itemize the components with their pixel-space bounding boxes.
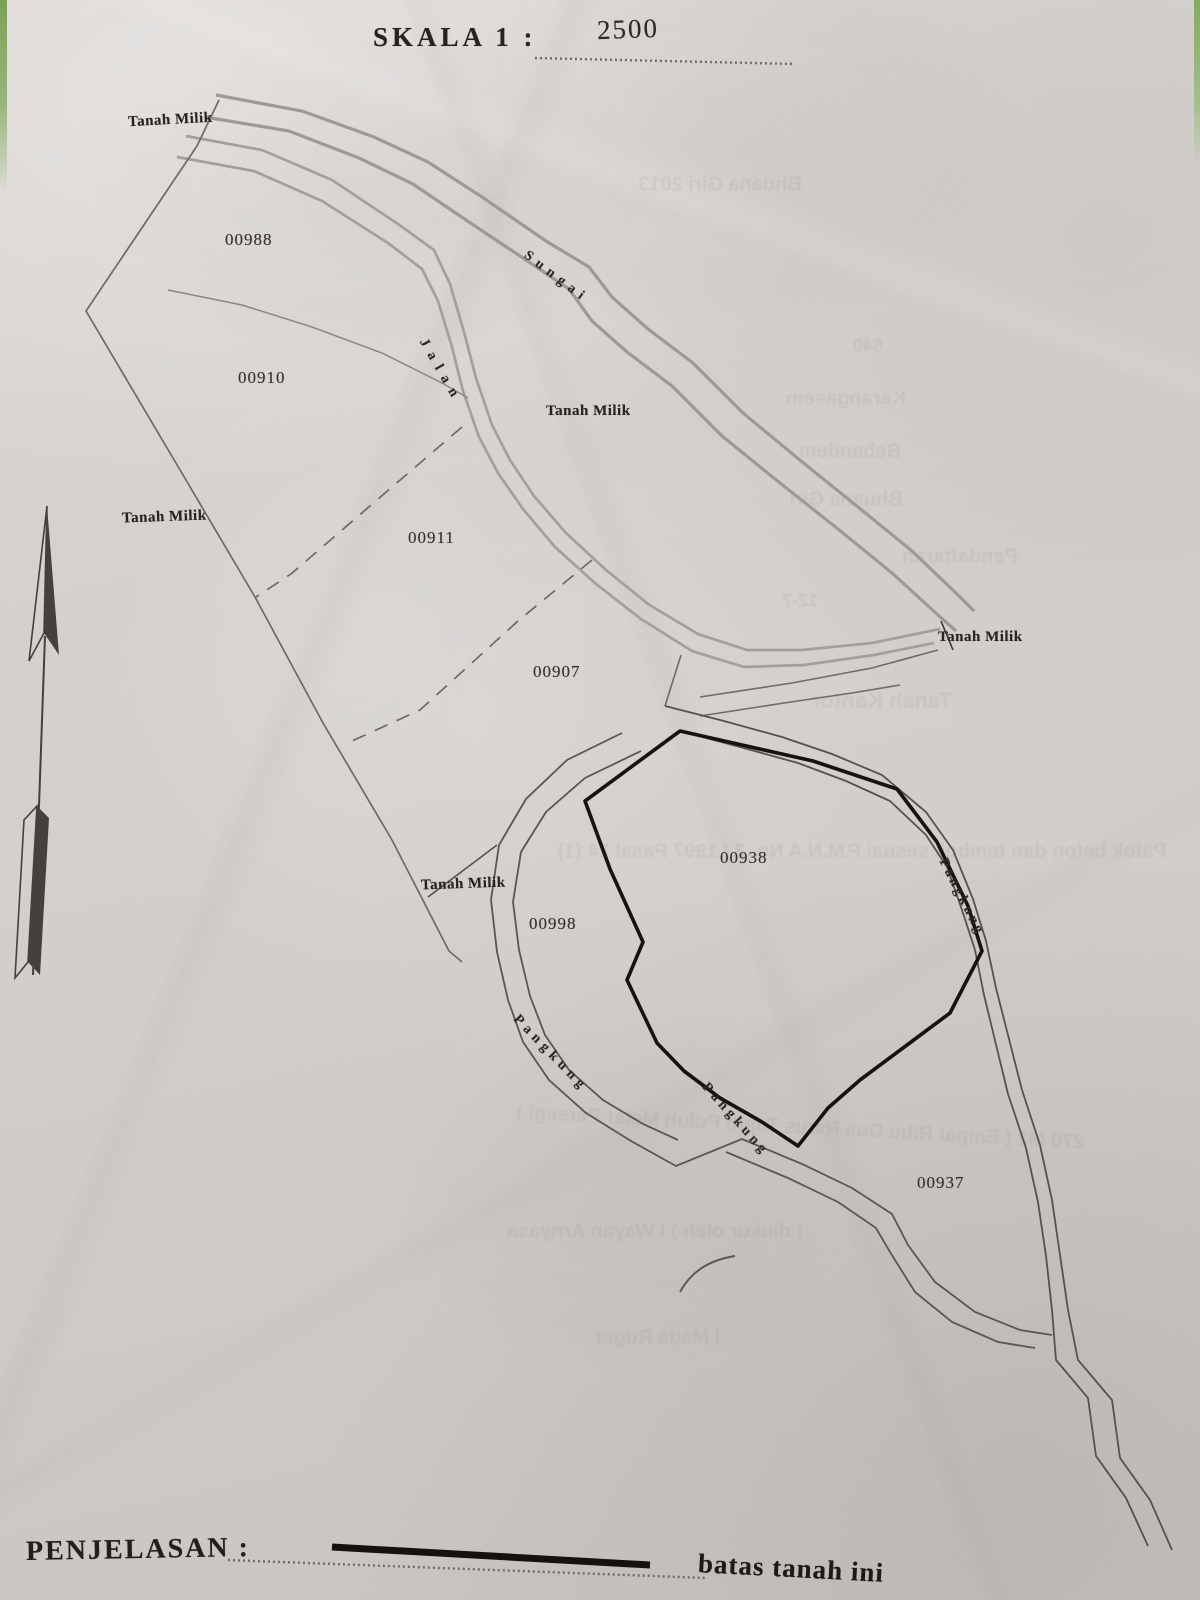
road-line-east (186, 136, 940, 650)
dashed-divider-1 (256, 427, 462, 597)
parcel-number-00911: 00911 (408, 528, 455, 548)
scale-title: SKALA 1 : (373, 22, 537, 53)
river-line-south (205, 117, 956, 631)
river-line-north (216, 95, 974, 611)
contour-curve (680, 1256, 735, 1292)
owner-label-right: Tanah Milik (938, 629, 1023, 646)
wedge-line-1 (700, 650, 938, 697)
north-arrow-tail-fill (28, 806, 49, 975)
owner-label-south: Tanah Milik (421, 875, 506, 895)
boundary-road-to-gully (665, 655, 681, 706)
bold-land-boundary (585, 731, 982, 1146)
scale-value: 2500 (596, 13, 659, 46)
scale-dotted-line (535, 58, 795, 64)
parcel-number-00938: 00938 (720, 848, 768, 868)
gully-west-edge-2 (513, 751, 678, 1140)
parcel-number-00937: 00937 (917, 1173, 965, 1193)
scanned-land-map: Bhuana Giri 2013 640 Karangasem Bebandem… (0, 0, 1200, 1600)
owner-label-center: Tanah Milik (546, 403, 631, 420)
parcel-number-00910: 00910 (238, 368, 286, 388)
parcel-number-00988: 00988 (225, 230, 273, 250)
map-linework (0, 0, 1200, 1600)
gully-west-edge-1 (491, 733, 742, 1166)
parcel-number-00907: 00907 (533, 662, 581, 682)
wedge-line-2 (700, 685, 900, 716)
north-arrow (15, 506, 59, 978)
gully-south-edge-2 (726, 1152, 1035, 1348)
legend-boundary-sample-line (332, 1547, 650, 1565)
owner-label-left: Tanah Milik (122, 508, 207, 528)
legend-title: PENJELASAN : (26, 1532, 250, 1568)
parcel-number-00998: 00998 (529, 914, 577, 934)
parcel-boundary-left (86, 146, 462, 962)
gully-south-edge-1 (742, 1139, 1052, 1335)
dashed-divider-2 (352, 560, 592, 741)
